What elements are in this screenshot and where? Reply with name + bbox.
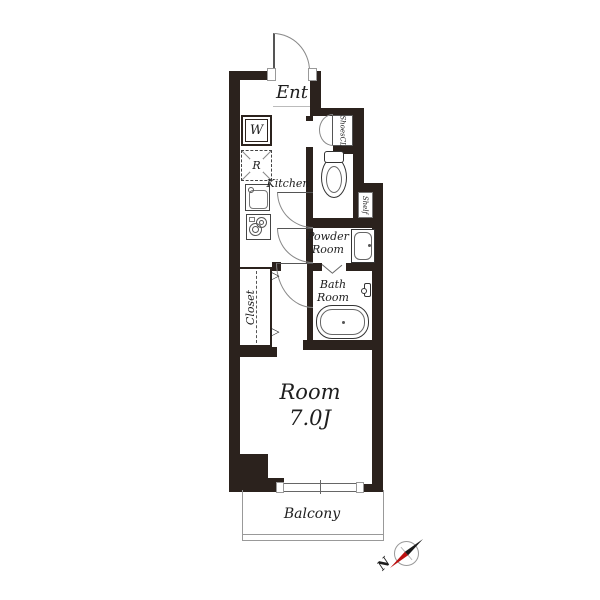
balcony-rail [242,534,384,541]
wall [306,116,313,121]
wall [346,263,383,271]
powder-room-label: Powder Room [305,230,351,256]
shoes-closet-label: ShoesCL [332,115,353,146]
compass-icon [384,536,430,578]
window-jamb [356,482,364,493]
bath-faucet-icon [364,283,371,297]
washer-label: W [241,115,272,146]
floor-plan: Ent ShoesCL Shelf W R Kitchen [0,0,600,600]
wc-door-arc [277,192,313,228]
entrance-door-arc [273,33,310,71]
wall [310,80,321,110]
closet-door-marker-icon: ▷ [271,270,279,281]
wall [307,218,383,228]
kitchen-label: Kitchen [262,176,314,190]
bathtub-icon [316,305,369,339]
entrance-label: Ent [273,80,311,104]
balcony-window-mullion [320,480,321,494]
balcony-label: Balcony [262,504,362,524]
shelf-label: Shelf [358,192,373,218]
closet-door-marker-icon: ▷ [271,326,279,337]
stove-icon [246,214,271,240]
room-label: Room 7.0J [268,378,352,432]
room-door-arc [276,263,313,308]
entrance-step-line [273,106,310,107]
washbasin-icon [351,229,375,263]
wc-folding-door-icon [319,114,333,130]
bath-room-label: Bath Room [310,278,356,304]
closet-label: Closet [238,267,264,347]
bath-folding-door-icon [322,264,333,273]
wall [229,347,277,357]
toilet-seat-icon [326,166,342,193]
wall [303,340,383,350]
bath-folding-door-icon [332,265,343,274]
window-jamb [276,482,284,493]
wc-folding-door-icon [319,130,333,146]
toilet-tank-icon [324,151,344,163]
